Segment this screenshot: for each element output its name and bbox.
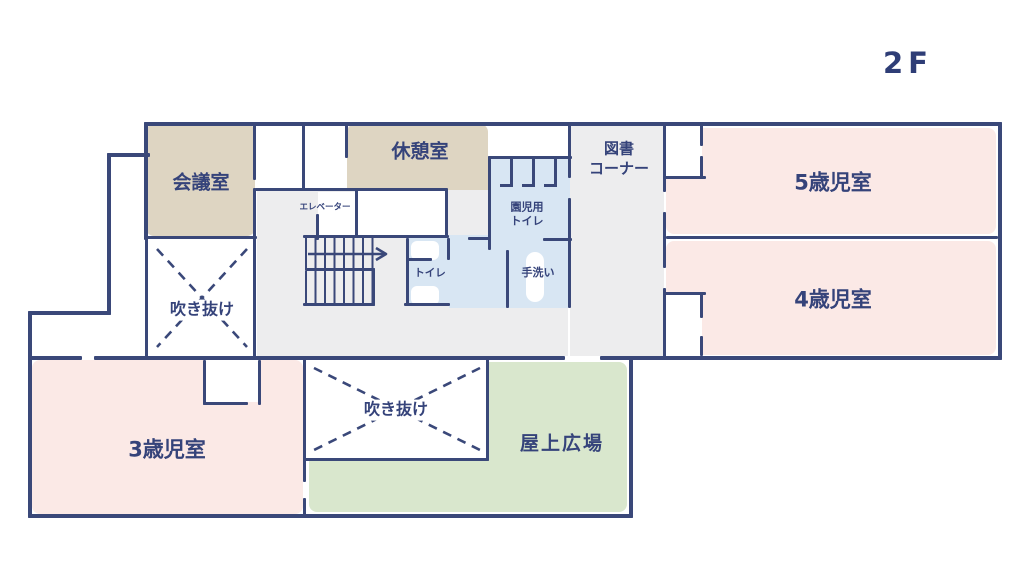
wall	[28, 311, 32, 518]
wall	[94, 356, 565, 360]
wall	[506, 250, 509, 308]
wall	[663, 212, 666, 268]
wall	[258, 360, 261, 405]
wall	[28, 514, 633, 518]
wall	[568, 238, 571, 308]
wall	[663, 122, 666, 192]
stairs-lower-flight	[305, 271, 374, 305]
wall	[600, 356, 633, 360]
kids-toilet-label: 園児用 トイレ	[511, 201, 544, 230]
alcove-top-area	[666, 126, 702, 178]
age4-room-label: 4歳児室	[794, 286, 872, 313]
wall	[303, 235, 449, 238]
elevator-label: エレベーター	[299, 202, 350, 213]
wall	[303, 303, 375, 306]
age3-notch-area	[205, 360, 260, 402]
wall	[345, 122, 348, 158]
void-upper-x-mark	[150, 242, 254, 354]
stall-partition-icon	[522, 158, 535, 187]
wall	[303, 458, 489, 461]
wall	[445, 188, 448, 238]
wall	[406, 258, 432, 261]
wall	[253, 238, 256, 358]
alcove-bottom-area	[666, 295, 702, 355]
handwash-label: 手洗い	[522, 266, 555, 280]
wall	[302, 122, 305, 191]
elevator-cab-area	[318, 192, 356, 236]
rooftop-plaza-label: 屋上広場	[520, 432, 604, 457]
wall	[488, 156, 572, 159]
wall	[629, 356, 633, 518]
wall	[488, 156, 491, 250]
wall	[253, 122, 256, 180]
wall	[144, 122, 1002, 126]
age5-room-label: 5歳児室	[794, 169, 872, 196]
wall	[486, 358, 489, 461]
wall	[303, 498, 306, 518]
stairs-direction-arrow	[300, 244, 400, 264]
stall-partition-icon	[500, 158, 513, 187]
wall	[666, 236, 998, 239]
wall	[255, 188, 447, 191]
wall	[663, 288, 666, 358]
wall	[203, 360, 206, 405]
floor-plan: 2F 会議室 休憩室 図書 コーナー 5歳児室 4歳児室 3歳児室 屋上広場 吹…	[0, 0, 1024, 576]
wall	[203, 402, 248, 405]
wall	[144, 236, 257, 239]
wall	[998, 122, 1002, 360]
wall	[447, 238, 450, 260]
void-lower-label: 吹き抜け	[359, 400, 433, 421]
wall	[28, 311, 111, 315]
wall	[406, 238, 409, 306]
break-room-label: 休憩室	[391, 140, 448, 165]
wall	[355, 188, 358, 238]
stall-partition-icon	[544, 158, 557, 187]
wall	[404, 303, 450, 306]
wall	[468, 237, 491, 240]
void-upper-label: 吹き抜け	[165, 300, 239, 321]
wall	[568, 122, 571, 178]
wall	[700, 292, 703, 318]
wall	[145, 238, 148, 358]
wall	[700, 156, 703, 179]
wall	[568, 198, 571, 240]
wall	[144, 122, 148, 240]
storage-room-area	[357, 190, 447, 236]
wall	[700, 122, 703, 146]
wall	[28, 356, 82, 360]
age3-room-label: 3歳児室	[128, 436, 206, 463]
wall	[372, 268, 375, 306]
wall	[303, 356, 306, 482]
wall	[107, 153, 111, 315]
wall	[253, 188, 256, 238]
floor-title: 2F	[883, 46, 933, 80]
library-corner-label: 図書 コーナー	[589, 140, 649, 179]
wall	[629, 356, 1002, 360]
toilet-label: トイレ	[414, 267, 446, 281]
wall	[700, 336, 703, 356]
wall	[305, 268, 375, 271]
meeting-room-label: 会議室	[172, 171, 229, 196]
